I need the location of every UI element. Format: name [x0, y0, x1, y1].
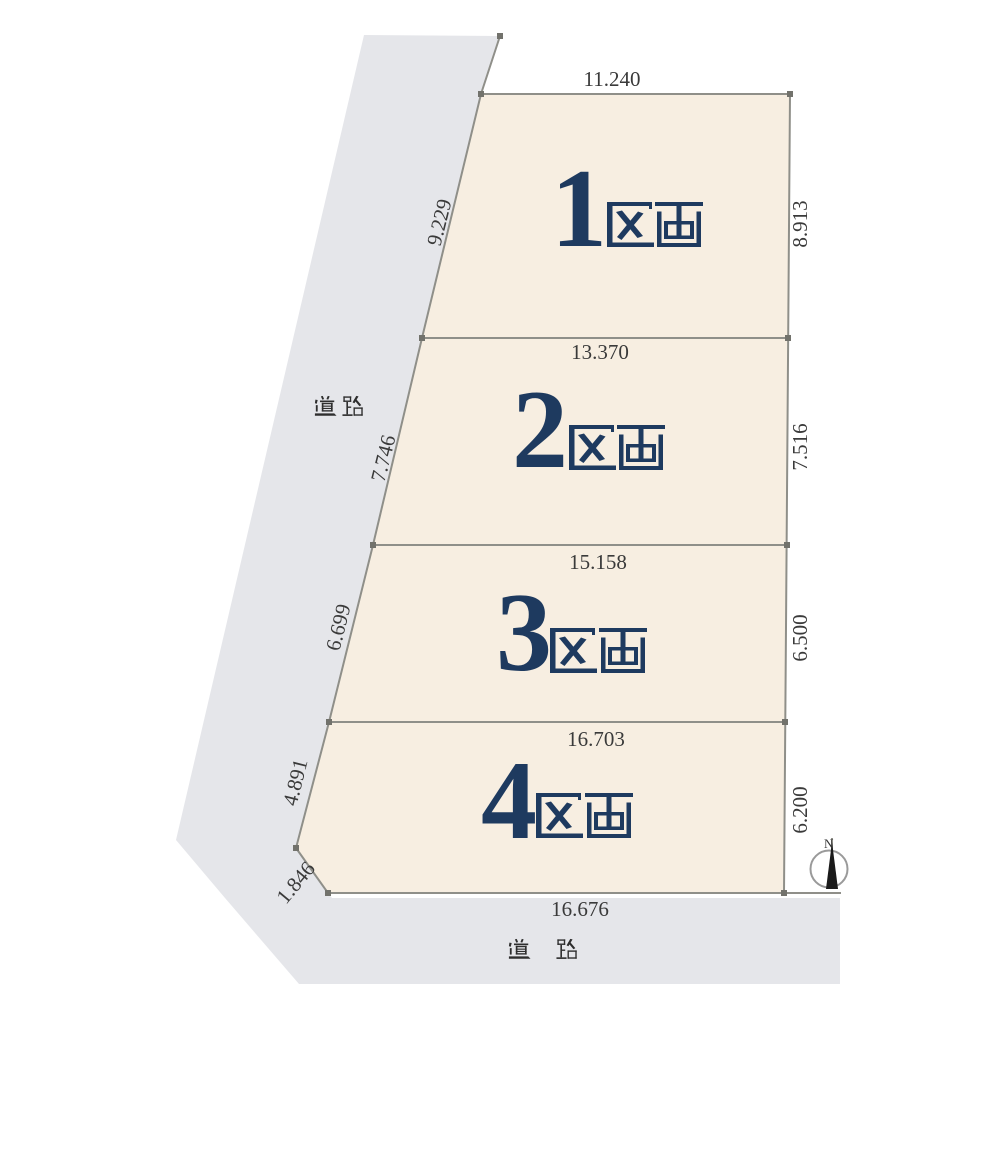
svg-text:11.240: 11.240 [584, 67, 641, 91]
svg-text:7.516: 7.516 [788, 423, 812, 470]
svg-text:13.370: 13.370 [571, 340, 629, 364]
svg-text:16.703: 16.703 [567, 727, 625, 751]
svg-text:1: 1 [551, 147, 607, 271]
svg-text:6.200: 6.200 [788, 786, 812, 833]
svg-text:4: 4 [481, 739, 537, 863]
svg-text:8.913: 8.913 [788, 200, 812, 247]
svg-text:15.158: 15.158 [569, 550, 627, 574]
svg-text:16.676: 16.676 [551, 897, 609, 921]
svg-text:6.500: 6.500 [788, 614, 812, 661]
svg-text:N: N [824, 836, 834, 851]
svg-text:3: 3 [496, 571, 552, 695]
svg-text:2: 2 [512, 368, 568, 492]
